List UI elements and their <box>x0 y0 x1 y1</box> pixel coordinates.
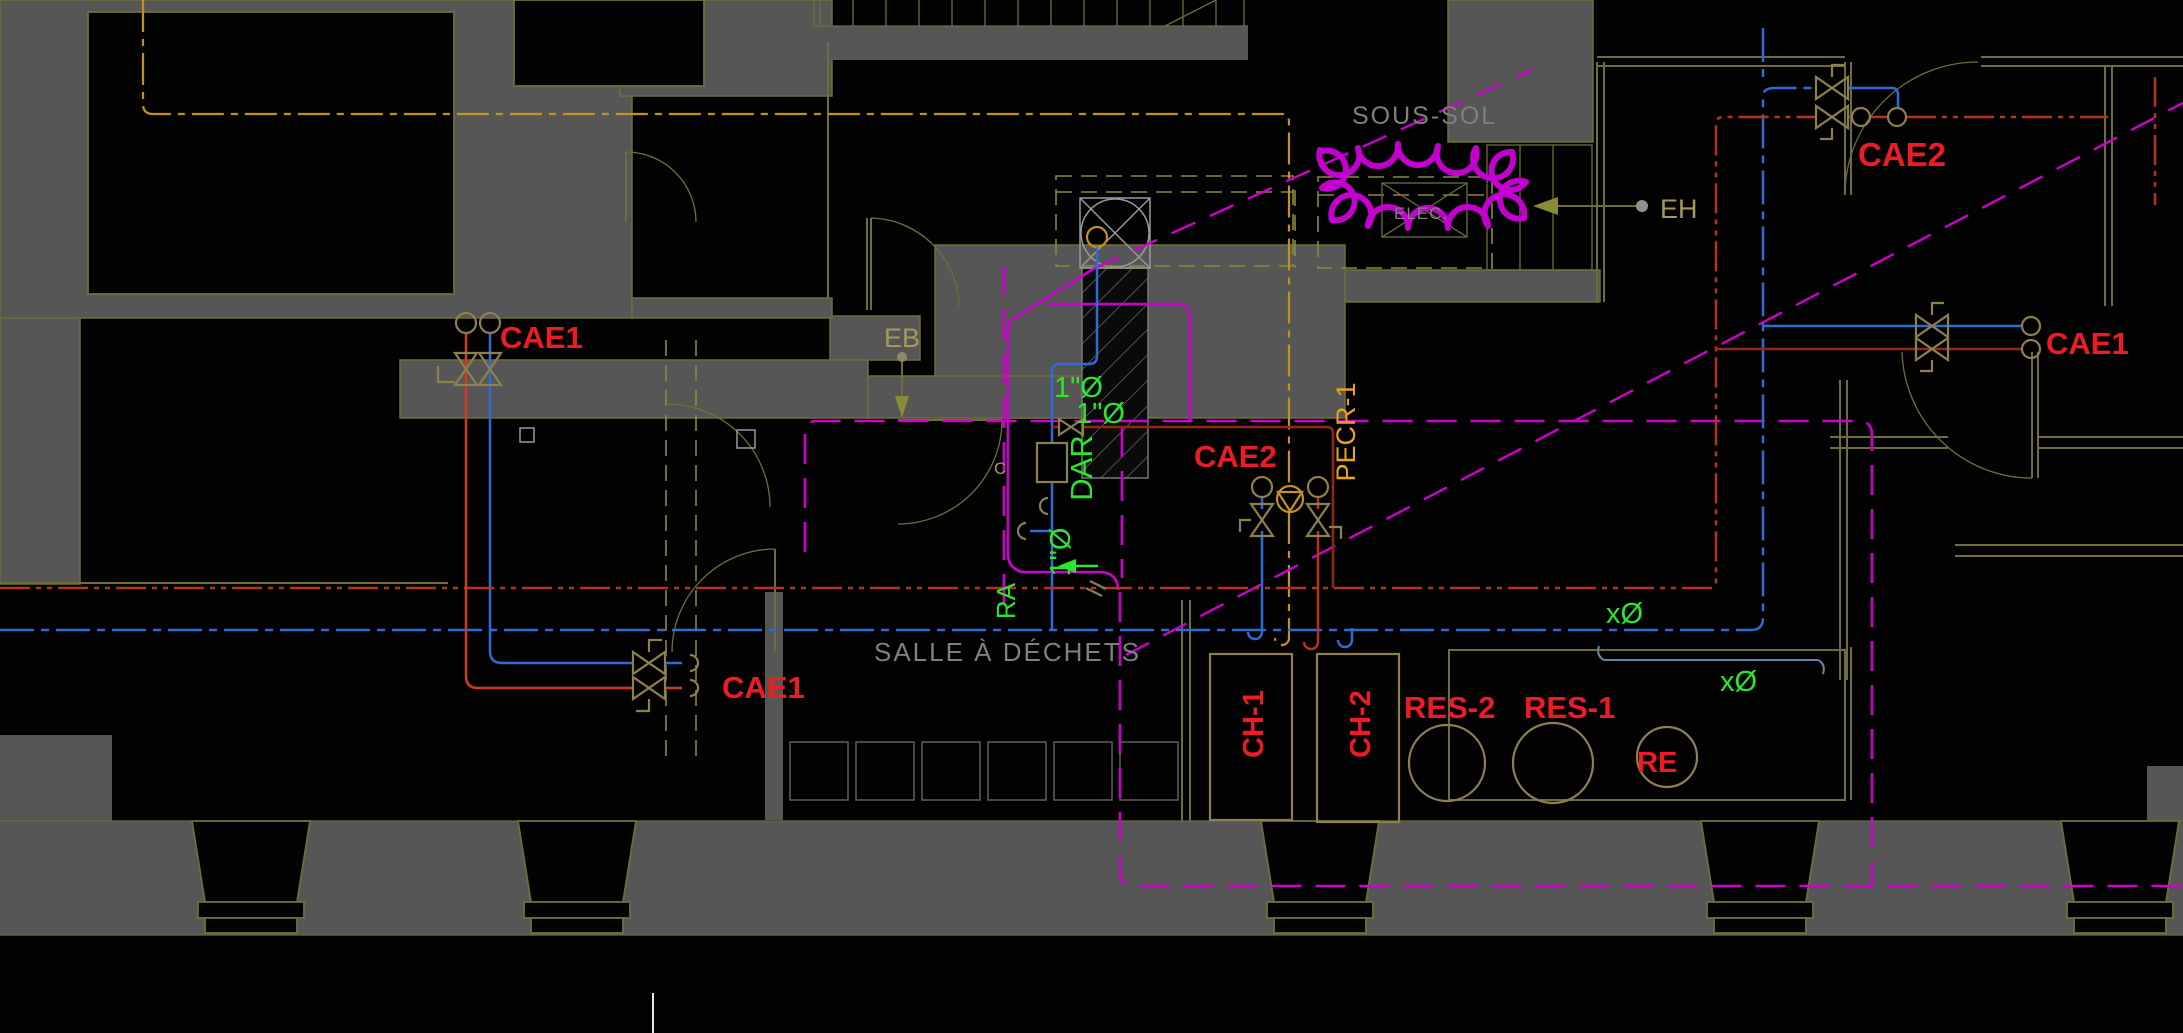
floor-label: SOUS-SOL <box>1352 102 1497 130</box>
tag-cae1-upper-left: CAE1 <box>500 320 583 355</box>
tag-cae1-lower-left: CAE1 <box>722 670 805 705</box>
label-eh: EH <box>1660 194 1698 224</box>
size-1in-c: 1"Ø <box>1045 528 1077 577</box>
room-label-salle: SALLE À DÉCHETS <box>874 637 1141 667</box>
pipe-cap <box>1888 108 1906 126</box>
pipe-cap <box>1852 108 1870 126</box>
tag-res1: RES-1 <box>1524 690 1615 725</box>
door <box>898 420 1002 524</box>
door <box>1845 62 1978 195</box>
circulation-pump <box>1277 486 1303 512</box>
tag-ra: RA <box>991 582 1021 619</box>
magenta-layer <box>805 70 2183 886</box>
eh-marker <box>1533 197 1648 215</box>
room-label-elec: ELEC. <box>1394 204 1448 223</box>
door <box>626 152 696 222</box>
tag-ch1: CH-1 <box>1238 690 1270 758</box>
pipe-cap <box>2022 317 2040 335</box>
footing <box>1261 821 1379 933</box>
size-x-a: xØ <box>1606 598 1643 630</box>
label-c: C <box>994 459 1007 478</box>
door-arc <box>667 404 770 507</box>
footing <box>1701 821 1819 933</box>
footing <box>518 821 636 933</box>
valve <box>1816 77 1848 99</box>
door <box>672 549 775 652</box>
dar-device <box>1037 443 1067 482</box>
label-eb: EB <box>884 323 920 353</box>
tank-res2-outline <box>1409 725 1485 801</box>
floor-plan-canvas[interactable]: SOUS-SOL ELEC. SALLE À DÉCHETS EB EH C C… <box>0 0 2183 1033</box>
size-x-b: xØ <box>1720 666 1757 698</box>
size-1in-b: 1"Ø <box>1076 398 1125 430</box>
valve <box>633 677 665 699</box>
pipe-cap <box>1308 477 1328 497</box>
footing <box>2061 821 2179 933</box>
tag-pecr1: PECR-1 <box>1331 382 1361 481</box>
pipe-cap <box>1252 477 1272 497</box>
tag-re: RE <box>1637 747 1677 779</box>
tag-cae2-upper-right: CAE2 <box>1858 136 1946 173</box>
tag-cae2-center: CAE2 <box>1194 439 1277 474</box>
hose-hook <box>1018 498 1048 539</box>
valve <box>1816 106 1848 128</box>
tank-res1-outline <box>1513 723 1593 803</box>
drain-connection <box>1087 227 1107 247</box>
stair-treads <box>814 0 1248 26</box>
annotation-layer: SOUS-SOL ELEC. SALLE À DÉCHETS EB EH C C… <box>500 102 2129 779</box>
room-top-notch <box>514 0 704 86</box>
tag-res2: RES-2 <box>1404 690 1495 725</box>
tag-dar: DAR <box>1064 435 1099 500</box>
valve <box>633 652 665 674</box>
tag-cae1-right: CAE1 <box>2046 326 2129 361</box>
tag-ch2: CH-2 <box>1345 690 1377 758</box>
footing <box>192 821 310 933</box>
